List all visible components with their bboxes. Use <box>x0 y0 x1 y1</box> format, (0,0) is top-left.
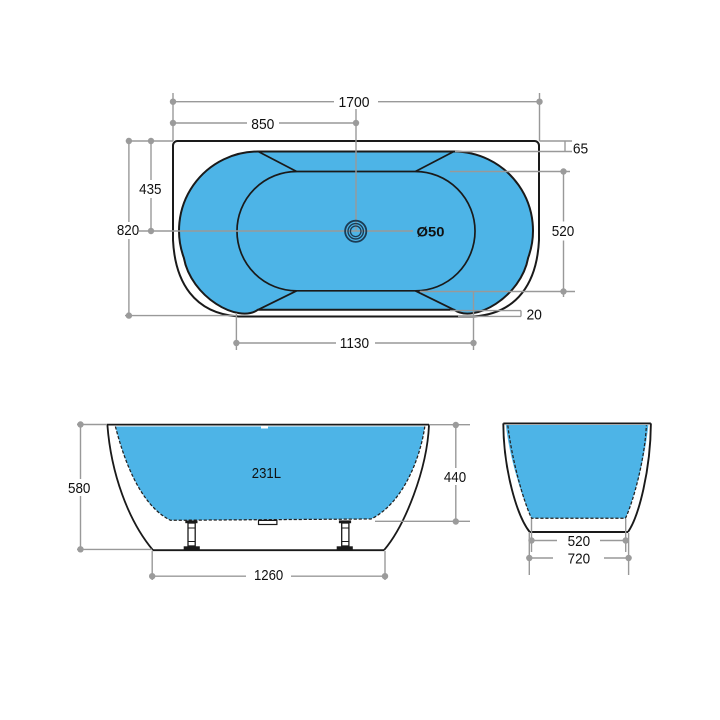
svg-text:1260: 1260 <box>254 567 283 584</box>
svg-text:440: 440 <box>444 469 466 486</box>
svg-text:580: 580 <box>68 480 90 497</box>
svg-text:1700: 1700 <box>339 94 370 111</box>
svg-text:520: 520 <box>568 533 591 550</box>
svg-text:820: 820 <box>117 222 139 239</box>
svg-text:720: 720 <box>568 550 591 567</box>
svg-text:520: 520 <box>552 223 575 240</box>
svg-text:435: 435 <box>139 181 161 198</box>
svg-text:1130: 1130 <box>340 335 369 352</box>
svg-text:20: 20 <box>526 307 542 324</box>
svg-text:231L: 231L <box>252 465 281 482</box>
svg-text:850: 850 <box>251 116 274 133</box>
svg-text:65: 65 <box>573 140 588 157</box>
svg-text:Ø50: Ø50 <box>417 223 445 239</box>
